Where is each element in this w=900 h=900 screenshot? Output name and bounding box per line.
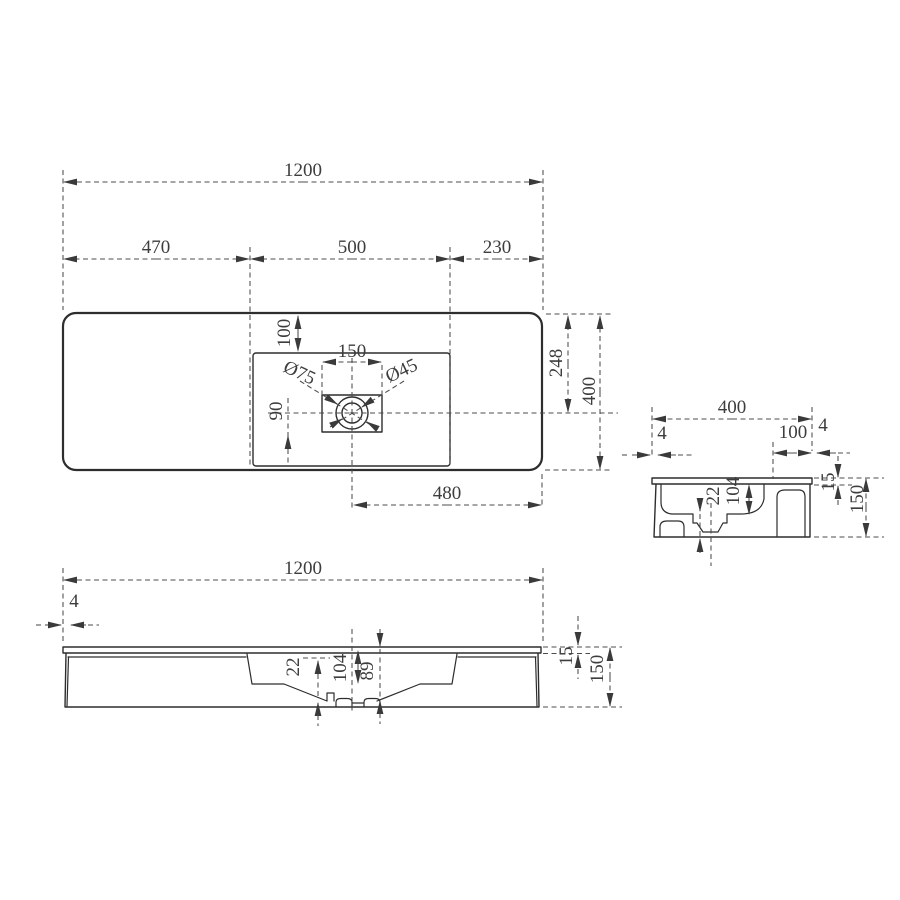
plan-dim-segment-center: 500 [338,237,367,258]
plan-view: 1200 470 500 230 150 480 100 90 248 400 … [63,160,618,508]
front-rim-slab [63,647,541,653]
leader-arrow [367,422,378,429]
front-dim-bowl-depth: 104 [330,653,351,682]
side-dim-overall-depth: 400 [718,397,747,418]
plan-dim-drain-inner-dia: Ø45 [382,355,421,388]
side-dim-bowl-depth: 104 [723,476,744,505]
front-dim-overall-width: 1200 [284,558,322,579]
front-dim-drain-depth: 89 [357,662,378,681]
plan-sink-outline [63,313,542,470]
plan-dim-rim-to-basin: 100 [274,319,295,348]
front-dim-side-lip: 4 [69,591,79,612]
front-view: 1200 4 22 104 89 15 150 [36,558,622,726]
plan-dim-segment-left: 470 [142,237,171,258]
plan-dim-faucet-span: 150 [338,341,367,362]
leader-arrow [326,397,337,404]
side-dim-rear-lip: 4 [818,415,828,436]
front-dim-overall-height: 150 [587,655,608,684]
plan-dim-overall-depth: 400 [579,377,600,406]
side-dim-rim-thickness: 15 [818,473,839,492]
drawing-canvas: 1200 470 500 230 150 480 100 90 248 400 … [0,0,900,900]
front-dim-rim-thickness: 15 [556,647,577,666]
plan-dim-rim-to-drain-center: 248 [546,349,567,378]
front-drain-step [327,693,334,701]
side-foot-rib [660,521,684,537]
side-view: 400 4 100 4 22 104 15 150 [622,397,884,566]
plan-dim-drain-offset: 90 [266,402,287,421]
side-dim-sump-step: 22 [703,487,724,506]
front-dim-sump-step: 22 [283,658,304,677]
plan-dim-drain-to-edge: 480 [433,483,462,504]
front-bowl-profile [247,654,457,701]
front-drain-flange-left [336,699,352,708]
front-drain-flange-right [364,699,380,708]
side-deck-cavity [777,490,805,536]
side-dim-front-lip: 4 [657,423,667,444]
side-dim-overall-height: 150 [847,485,868,514]
side-dim-rear-deck: 100 [779,422,808,443]
technical-drawing: 1200 470 500 230 150 480 100 90 248 400 … [0,0,900,900]
plan-dim-overall-width: 1200 [284,160,322,181]
plan-dim-drain-outer-dia: Ø75 [280,357,319,390]
plan-dim-segment-right: 230 [483,237,512,258]
